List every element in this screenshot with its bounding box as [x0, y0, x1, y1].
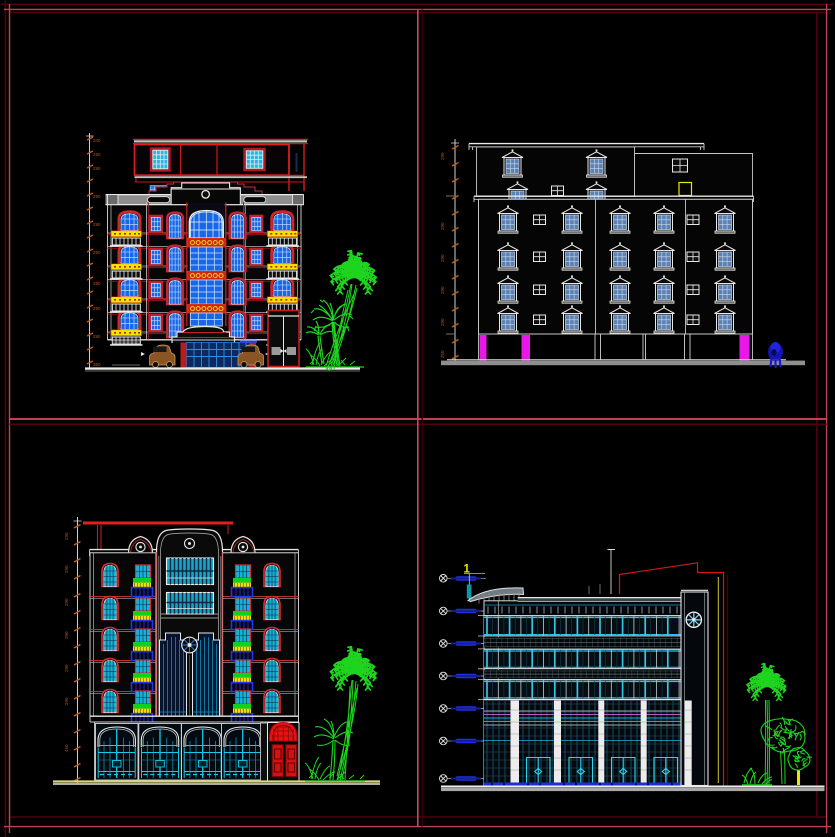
svg-text:290: 290 [440, 222, 445, 230]
svg-text:290: 290 [93, 222, 101, 227]
svg-text:290: 290 [93, 152, 101, 157]
svg-text:290: 290 [93, 306, 101, 311]
svg-text:290: 290 [64, 532, 69, 540]
svg-text:290: 290 [64, 565, 69, 573]
svg-text:290: 290 [64, 664, 69, 672]
svg-text:240: 240 [93, 138, 101, 143]
svg-text:350: 350 [93, 362, 101, 367]
svg-text:450: 450 [64, 744, 69, 752]
svg-text:290: 290 [64, 697, 69, 705]
svg-text:290: 290 [440, 152, 445, 160]
svg-text:290: 290 [440, 254, 445, 262]
svg-text:290: 290 [440, 286, 445, 294]
svg-text:290: 290 [93, 334, 101, 339]
svg-text:350: 350 [440, 350, 445, 358]
svg-text:290: 290 [64, 598, 69, 606]
svg-text:290: 290 [93, 250, 101, 255]
svg-text:290: 290 [93, 166, 101, 171]
svg-text:290: 290 [440, 318, 445, 326]
svg-text:290: 290 [93, 194, 101, 199]
svg-text:290: 290 [93, 281, 101, 286]
svg-text:290: 290 [64, 631, 69, 639]
